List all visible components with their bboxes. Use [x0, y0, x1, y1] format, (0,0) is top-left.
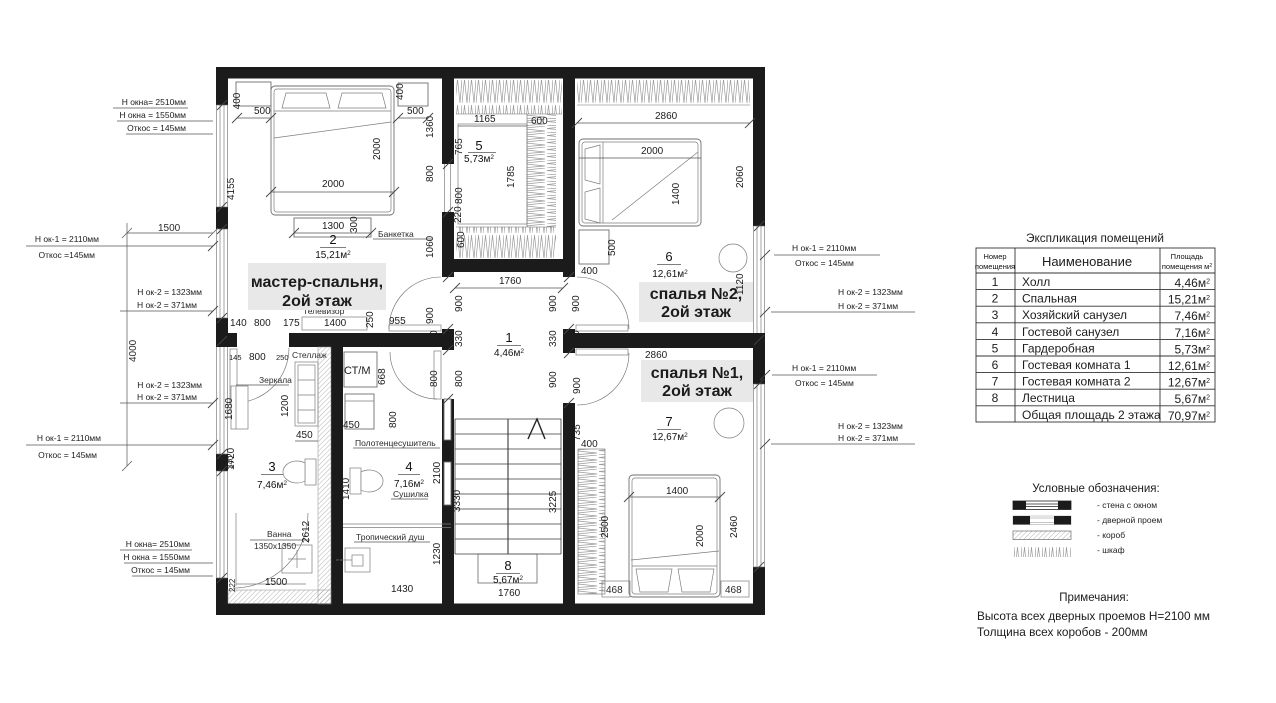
svg-text:1400: 1400 [666, 486, 689, 497]
svg-text:Условные обозначения:: Условные обозначения: [1032, 483, 1159, 495]
svg-text:2: 2 [329, 232, 336, 247]
svg-text:7: 7 [992, 375, 999, 389]
svg-text:400: 400 [395, 83, 406, 100]
svg-text:7: 7 [665, 414, 672, 429]
svg-text:250: 250 [365, 311, 376, 328]
svg-text:330: 330 [454, 330, 465, 347]
svg-text:помещения м2: помещения м2 [1162, 262, 1212, 271]
svg-text:Н ок-2 = 371мм: Н ок-2 = 371мм [137, 300, 197, 310]
svg-text:2: 2 [992, 292, 999, 306]
svg-text:4155: 4155 [226, 177, 237, 200]
svg-text:2000: 2000 [695, 524, 706, 547]
svg-text:Зеркала: Зеркала [259, 375, 292, 385]
svg-text:765: 765 [454, 138, 465, 155]
svg-text:330: 330 [571, 330, 582, 347]
svg-text:Высота всех дверных проемов Н=: Высота всех дверных проемов Н=2100 мм [977, 609, 1210, 623]
svg-text:Экспликация помещений: Экспликация помещений [1026, 231, 1164, 245]
svg-text:Банкетка: Банкетка [378, 229, 414, 239]
svg-text:800: 800 [388, 411, 399, 428]
svg-text:1680: 1680 [224, 397, 235, 420]
svg-text:15,21м2: 15,21м2 [1168, 293, 1210, 307]
svg-text:1300: 1300 [332, 550, 343, 573]
svg-text:900: 900 [571, 295, 582, 312]
svg-text:спалья №2,: спалья №2, [650, 286, 742, 303]
svg-text:2612: 2612 [301, 520, 312, 543]
svg-text:450: 450 [343, 420, 360, 431]
svg-text:Ванна: Ванна [267, 529, 292, 539]
svg-text:1760: 1760 [499, 276, 522, 287]
svg-text:526: 526 [567, 126, 578, 143]
svg-text:СТ/М: СТ/М [344, 365, 371, 377]
svg-text:5,73м2: 5,73м2 [1174, 342, 1210, 356]
svg-text:400: 400 [567, 86, 578, 103]
svg-text:3: 3 [268, 459, 275, 474]
svg-text:800: 800 [425, 165, 436, 182]
svg-text:Откос =145мм: Откос =145мм [39, 250, 96, 260]
svg-text:5: 5 [992, 341, 999, 355]
svg-text:мастер-спальня,: мастер-спальня, [251, 274, 383, 291]
svg-text:330: 330 [548, 330, 559, 347]
svg-text:800: 800 [454, 370, 465, 387]
svg-text:2ой этаж: 2ой этаж [662, 383, 732, 400]
svg-text:Н ок-2 = 371мм: Н ок-2 = 371мм [137, 392, 197, 402]
svg-text:300: 300 [349, 216, 360, 233]
svg-text:Н ок-2 = 1323мм: Н ок-2 = 1323мм [838, 287, 903, 297]
svg-text:900: 900 [425, 307, 436, 324]
svg-text:3: 3 [992, 308, 999, 322]
svg-text:400: 400 [581, 266, 598, 277]
svg-text:6: 6 [992, 358, 999, 372]
svg-text:3225: 3225 [548, 490, 559, 513]
svg-text:5,67м2: 5,67м2 [493, 575, 523, 586]
svg-text:Площадь: Площадь [1171, 252, 1204, 261]
svg-text:Тропический душ: Тропический душ [356, 532, 425, 542]
svg-text:800: 800 [454, 187, 465, 204]
svg-text:2460: 2460 [729, 515, 740, 538]
svg-text:500: 500 [254, 106, 271, 117]
svg-text:Н ок-2 = 1323мм: Н ок-2 = 1323мм [137, 380, 202, 390]
svg-text:2500: 2500 [600, 515, 611, 538]
svg-text:Откос = 145мм: Откос = 145мм [795, 258, 854, 268]
svg-text:Н ок-1 = 2110мм: Н ок-1 = 2110мм [792, 243, 856, 253]
svg-text:Общая площадь 2 этажа: Общая площадь 2 этажа [1022, 408, 1161, 422]
svg-text:Откос = 145мм: Откос = 145мм [38, 450, 97, 460]
svg-text:Н ок-1 = 2110мм: Н ок-1 = 2110мм [35, 234, 99, 244]
svg-text:468: 468 [606, 585, 623, 596]
svg-text:12,61м2: 12,61м2 [652, 269, 688, 280]
svg-text:Гостевой санузел: Гостевой санузел [1022, 325, 1119, 339]
svg-text:Толщина всех коробов - 200мм: Толщина всех коробов - 200мм [977, 625, 1148, 639]
svg-text:1165: 1165 [474, 114, 496, 125]
svg-text:Спальная: Спальная [1022, 292, 1077, 306]
svg-text:помещения: помещения [975, 262, 1015, 271]
svg-text:7,46м2: 7,46м2 [1174, 309, 1210, 323]
svg-text:4000: 4000 [128, 339, 139, 362]
svg-text:140: 140 [230, 318, 247, 329]
svg-text:- стена с окном: - стена с окном [1097, 500, 1157, 510]
svg-text:Лестница: Лестница [1022, 391, 1075, 405]
svg-text:250: 250 [276, 353, 289, 362]
svg-text:5: 5 [475, 138, 482, 153]
svg-text:4,46м2: 4,46м2 [494, 348, 524, 359]
svg-text:800: 800 [429, 370, 440, 387]
svg-text:6: 6 [665, 249, 672, 264]
svg-text:5,73м2: 5,73м2 [464, 154, 494, 165]
svg-text:1120: 1120 [735, 273, 746, 295]
svg-text:2000: 2000 [372, 137, 383, 160]
svg-text:1350x1350: 1350x1350 [254, 541, 296, 551]
svg-text:Сушилка: Сушилка [393, 489, 429, 499]
svg-text:Холл: Холл [1022, 275, 1050, 289]
svg-text:175: 175 [283, 318, 300, 329]
svg-text:7,16м2: 7,16м2 [394, 479, 424, 490]
svg-text:70,97м2: 70,97м2 [1168, 409, 1210, 423]
svg-text:- короб: - короб [1097, 530, 1125, 540]
svg-text:1430: 1430 [391, 584, 414, 595]
svg-text:800: 800 [254, 318, 271, 329]
svg-text:4,46м2: 4,46м2 [1174, 276, 1210, 290]
svg-text:Наименование: Наименование [1042, 254, 1132, 269]
svg-text:15,21м2: 15,21м2 [315, 250, 351, 261]
svg-text:1720: 1720 [226, 447, 237, 470]
svg-text:2100: 2100 [432, 461, 443, 484]
svg-text:Н окна = 1550мм: Н окна = 1550мм [123, 552, 190, 562]
svg-text:Гостевая комната 2: Гостевая комната 2 [1022, 375, 1131, 389]
svg-text:450: 450 [296, 430, 313, 441]
svg-text:Н ок-2 = 1323мм: Н ок-2 = 1323мм [838, 421, 903, 431]
svg-text:955: 955 [389, 316, 406, 327]
svg-text:Н ок-2 = 371мм: Н ок-2 = 371мм [838, 301, 898, 311]
svg-text:- дверной проем: - дверной проем [1097, 515, 1162, 525]
svg-text:1400: 1400 [671, 182, 682, 205]
svg-text:1: 1 [505, 330, 512, 345]
svg-text:900: 900 [548, 371, 559, 388]
svg-text:2000: 2000 [322, 179, 345, 190]
svg-text:2860: 2860 [655, 111, 678, 122]
svg-text:2ой этаж: 2ой этаж [282, 293, 352, 310]
svg-text:222: 222 [228, 578, 237, 592]
svg-text:Гардеробная: Гардеробная [1022, 341, 1095, 355]
svg-text:Н окна= 2510мм: Н окна= 2510мм [122, 97, 186, 107]
svg-text:500: 500 [607, 239, 618, 256]
svg-text:спалья №1,: спалья №1, [651, 365, 743, 382]
svg-text:Н ок-1 = 2110мм: Н ок-1 = 2110мм [37, 433, 101, 443]
svg-text:600: 600 [531, 116, 548, 127]
svg-text:5,67м2: 5,67м2 [1174, 392, 1210, 406]
svg-text:1500: 1500 [265, 577, 288, 588]
svg-text:468: 468 [725, 585, 742, 596]
svg-text:7,46м2: 7,46м2 [257, 480, 287, 491]
svg-text:4: 4 [405, 459, 412, 474]
svg-text:Хозяйский санузел: Хозяйский санузел [1022, 308, 1127, 322]
svg-text:1060: 1060 [425, 235, 436, 258]
svg-text:Н окна= 2510мм: Н окна= 2510мм [126, 539, 190, 549]
svg-text:Н окна = 1550мм: Н окна = 1550мм [119, 110, 186, 120]
svg-text:Откос = 145мм: Откос = 145мм [795, 378, 854, 388]
svg-text:1785: 1785 [506, 165, 517, 188]
svg-text:1760: 1760 [498, 588, 521, 599]
svg-text:900: 900 [572, 377, 583, 394]
svg-text:12,67м2: 12,67м2 [652, 432, 688, 443]
svg-text:12,61м2: 12,61м2 [1168, 359, 1210, 373]
svg-text:800: 800 [249, 352, 266, 363]
svg-text:1200: 1200 [280, 394, 291, 417]
svg-text:2000: 2000 [641, 146, 664, 157]
svg-text:Примечания:: Примечания: [1059, 592, 1129, 604]
svg-text:900: 900 [454, 295, 465, 312]
svg-text:Откос = 145мм: Откос = 145мм [127, 123, 186, 133]
svg-text:600: 600 [456, 231, 467, 248]
svg-text:330: 330 [429, 330, 440, 347]
svg-text:7,16м2: 7,16м2 [1174, 326, 1210, 340]
svg-text:2ой этаж: 2ой этаж [661, 304, 731, 321]
svg-text:668: 668 [377, 368, 388, 385]
svg-text:2860: 2860 [645, 350, 668, 361]
svg-text:1500: 1500 [158, 223, 181, 234]
svg-text:Номер: Номер [983, 252, 1006, 261]
svg-text:4: 4 [992, 325, 999, 339]
svg-text:Откос = 145мм: Откос = 145мм [131, 565, 190, 575]
svg-text:8: 8 [504, 558, 511, 573]
svg-text:Н ок-2 = 1323мм: Н ок-2 = 1323мм [137, 287, 202, 297]
svg-text:500: 500 [407, 106, 424, 117]
svg-text:8: 8 [992, 391, 999, 405]
svg-text:900: 900 [548, 295, 559, 312]
svg-text:3330: 3330 [452, 489, 463, 512]
svg-text:Полотенцесушитель: Полотенцесушитель [355, 438, 436, 448]
svg-text:Н ок-1 = 2110мм: Н ок-1 = 2110мм [792, 363, 856, 373]
svg-text:1300: 1300 [322, 221, 345, 232]
svg-text:1: 1 [992, 275, 999, 289]
svg-text:1230: 1230 [432, 542, 443, 565]
svg-text:12,67м2: 12,67м2 [1168, 376, 1210, 390]
svg-text:400: 400 [232, 92, 243, 109]
svg-text:1410: 1410 [341, 477, 352, 500]
svg-text:220: 220 [453, 206, 464, 223]
svg-text:400: 400 [581, 439, 598, 450]
svg-text:Н ок-2 = 371мм: Н ок-2 = 371мм [838, 433, 898, 443]
svg-text:2060: 2060 [735, 165, 746, 188]
svg-text:1400: 1400 [324, 318, 347, 329]
svg-text:Гостевая комната 1: Гостевая комната 1 [1022, 358, 1131, 372]
svg-text:- шкаф: - шкаф [1097, 545, 1125, 555]
svg-text:145: 145 [229, 353, 242, 362]
